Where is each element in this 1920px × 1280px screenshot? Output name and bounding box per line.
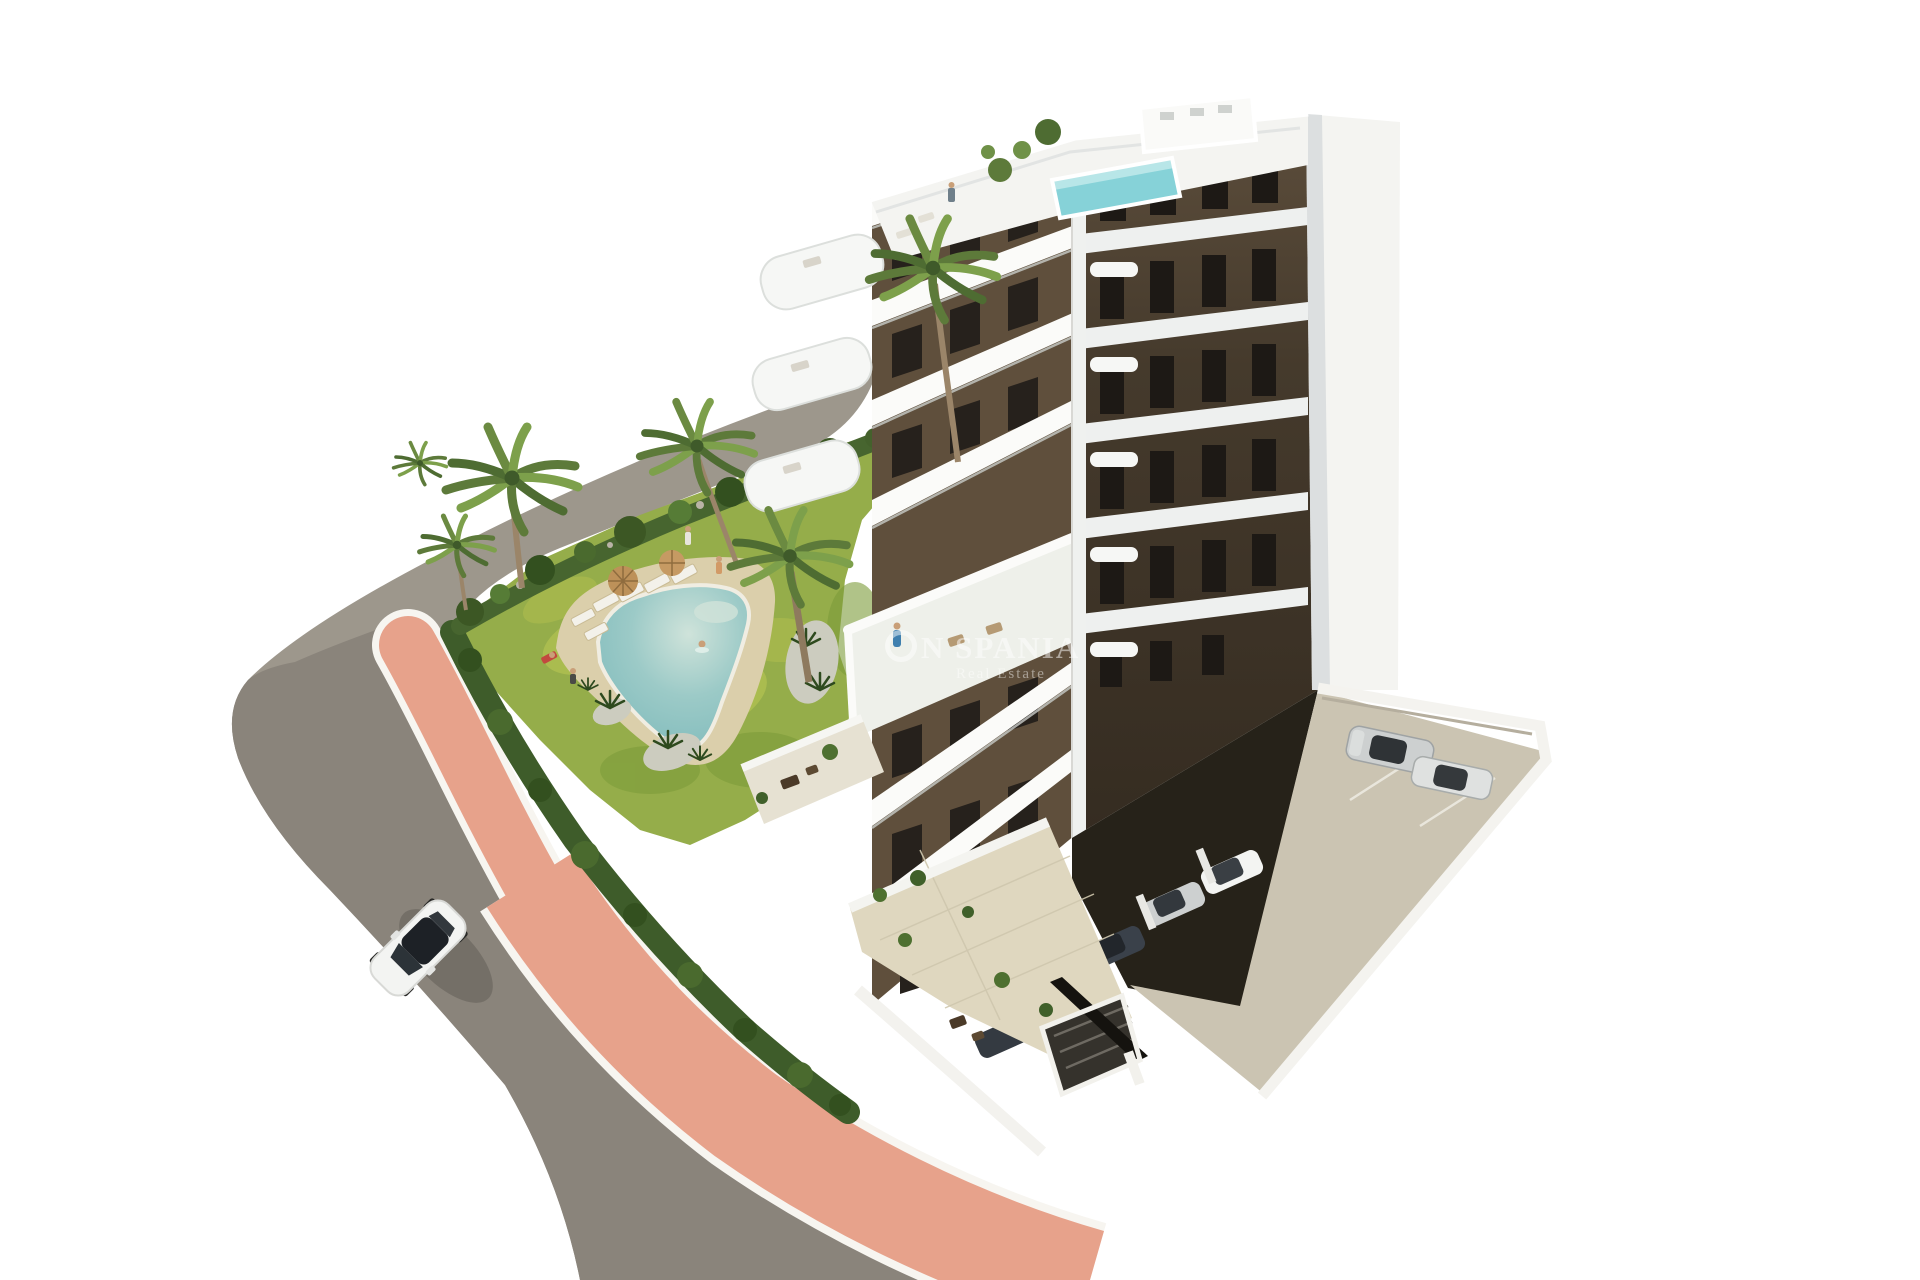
rooftop-pergola xyxy=(1140,96,1256,152)
render-canvas: N SPANIA Real Estate xyxy=(0,0,1920,1280)
rooftop-person xyxy=(948,188,955,202)
stair-core-gable xyxy=(1306,100,1402,690)
architectural-render: N SPANIA Real Estate xyxy=(0,0,1920,1280)
pool-beach-entry xyxy=(694,601,738,623)
watermark-subtitle: Real Estate xyxy=(956,666,1046,682)
se-corner-pilaster xyxy=(1072,138,1086,838)
watermark-text: N SPANIA xyxy=(921,630,1080,665)
